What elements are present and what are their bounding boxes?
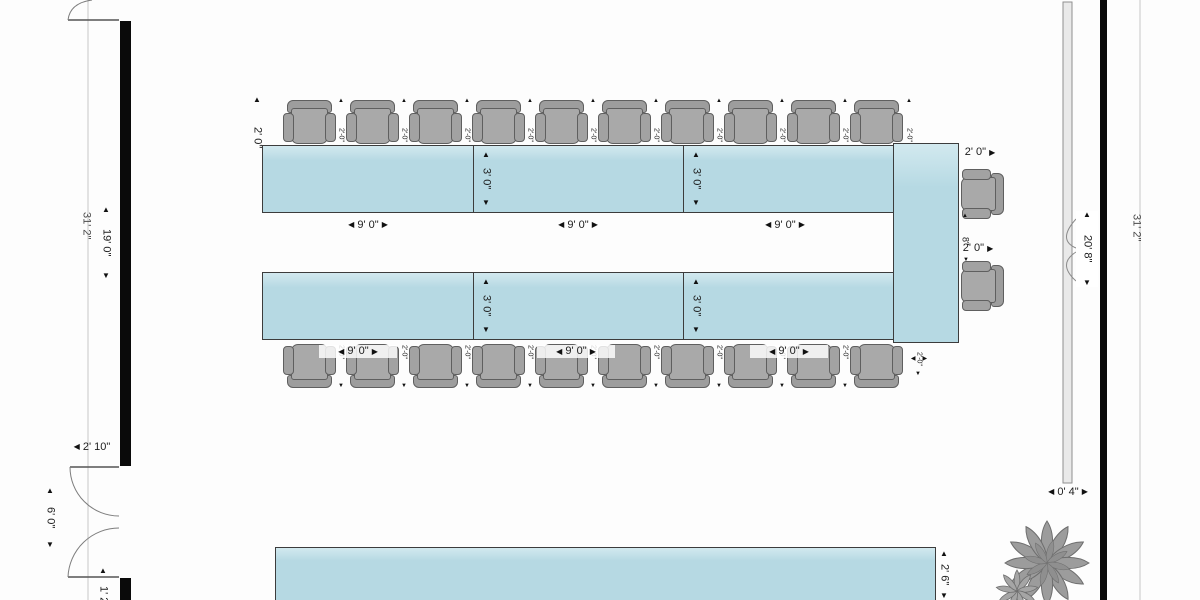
arrow-up-icon: ▲ (253, 96, 261, 104)
arrow-down-icon: ▼ (482, 326, 490, 334)
dim-board-length: ▲ 20' 8" ▼ (1076, 211, 1098, 287)
chair[interactable] (409, 343, 462, 388)
chair[interactable] (661, 100, 714, 145)
dim-room-side-left: 31' 2" (76, 212, 96, 272)
table-section-bottom-3[interactable] (683, 272, 894, 340)
dim-text: 2'-0" (916, 352, 923, 366)
dim-text: 9' 0" (567, 220, 588, 231)
dim-text: 31' 2" (1131, 214, 1142, 241)
dim-chair-gap: 2'-0"▼ (399, 345, 409, 389)
chair[interactable] (598, 100, 651, 145)
arrow-left-icon: ◀ (348, 221, 354, 229)
dim-section-length: ◀ 9' 0" ▶ (319, 345, 397, 358)
dim-text: 9' 0" (565, 346, 586, 357)
plant[interactable] (996, 521, 1089, 600)
dim-text: 2' 0" (252, 127, 263, 148)
table-section-bottom-1[interactable] (262, 272, 474, 340)
dim-text: 6' 0" (45, 507, 56, 528)
arrow-up-icon: ▲ (590, 98, 596, 104)
arrow-left-icon: ◀ (769, 348, 775, 356)
arrow-right-icon: ▶ (382, 221, 388, 229)
dim-text: 9' 0" (357, 220, 378, 231)
back-table[interactable] (275, 547, 936, 600)
dim-chair-gap: 2'-0"▼ (651, 345, 661, 389)
left-wall-stub (120, 578, 131, 600)
arrow-down-icon: ▼ (940, 592, 948, 600)
arrow-down-icon: ▼ (482, 199, 490, 207)
dim-section-depth: ▲3' 0"▼ (688, 278, 704, 334)
dim-board-depth: ◀ 0' 4" ▶ (1034, 485, 1102, 499)
dim-text: 2' 10" (83, 442, 110, 453)
dim-room-side-right: 31' 2" (1126, 214, 1146, 274)
dim-section-depth: ▲3' 0"▼ (478, 151, 494, 207)
table-section-top-1[interactable] (262, 145, 474, 213)
dim-text: 2'-0" (527, 128, 534, 142)
dim-text: 19' 0" (101, 229, 112, 256)
arrow-right-icon: ▶ (989, 149, 995, 157)
arrow-left-icon: ◀ (765, 221, 771, 229)
dim-section-length: ◀ 9' 0" ▶ (330, 218, 406, 232)
arrow-right-icon: ▶ (803, 348, 809, 356)
right-wall (1100, 0, 1107, 600)
arrow-down-icon: ▼ (102, 272, 110, 280)
arrow-down-icon: ▼ (338, 383, 344, 389)
dim-chair-gap: ▲2'-0" (525, 98, 535, 142)
table-section-top-3[interactable] (683, 145, 894, 213)
chair[interactable] (850, 100, 903, 145)
dim-text: 2'-0" (779, 128, 786, 142)
arrow-right-icon: ▶ (987, 245, 993, 253)
dim-chair-gap: ▲2'-0" (399, 98, 409, 142)
arrow-down-icon: ▼ (590, 383, 596, 389)
whiteboard[interactable] (1063, 2, 1072, 483)
dim-section-length: ◀ 9' 0" ▶ (540, 218, 616, 232)
table-section-top-2[interactable] (473, 145, 684, 213)
dim-text: 2'-0" (590, 128, 597, 142)
dim-text: 9' 0" (347, 346, 368, 357)
dim-text: 1' 2" (98, 586, 109, 600)
dim-wall-segment: ▲ 19' 0" ▼ (96, 206, 116, 280)
arrow-left-icon: ◀ (338, 348, 344, 356)
dim-text: 20' 8" (1082, 235, 1093, 262)
dim-section-depth: ▲3' 0"▼ (478, 278, 494, 334)
dim-door-opening: ▲ 6' 0" ▼ (42, 487, 58, 549)
dim-text: 2'-0" (338, 128, 345, 142)
arrow-up-icon: ▲ (464, 98, 470, 104)
chair[interactable] (724, 100, 777, 145)
table-section-head[interactable] (893, 143, 959, 343)
dim-section-depth: ▲3' 0"▼ (688, 151, 704, 207)
arrow-up-icon: ▲ (482, 151, 490, 159)
dim-chair-gap: ▲2'-0" (651, 98, 661, 142)
chair[interactable] (960, 169, 1004, 219)
dim-chair-gap: ▲2'-0" (714, 98, 724, 142)
dim-text: 2'-0" (716, 128, 723, 142)
arrow-left-icon: ◀ (556, 348, 562, 356)
dim-text: 2' 0" (965, 147, 986, 158)
arrow-right-icon: ▶ (799, 221, 805, 229)
arrow-down-icon: ▼ (913, 370, 923, 378)
dim-text: 2'-0" (401, 128, 408, 142)
arrow-up-icon: ▲ (962, 213, 968, 219)
arrow-up-icon: ▲ (338, 98, 344, 104)
double-door (68, 467, 119, 577)
dim-text: 2'-0" (464, 345, 471, 359)
dim-chair-gap: ▲2'-0" (588, 98, 598, 142)
dim-chair-width: 2' 0" ▶ (956, 146, 1004, 159)
chair[interactable] (472, 100, 525, 145)
chair[interactable] (787, 100, 840, 145)
dim-wall-stub: ▲ 1' 2" (95, 567, 111, 600)
dim-text: 2' 6" (939, 564, 950, 585)
arrow-up-icon: ▲ (527, 98, 533, 104)
arrow-left-icon: ◀ (1048, 488, 1054, 496)
arrow-up-icon: ▲ (906, 98, 912, 104)
arrow-up-icon: ▲ (102, 206, 110, 214)
arrow-up-icon: ▲ (46, 487, 54, 495)
dim-chair-gap: ▲2'-0" (462, 98, 472, 142)
arrow-down-icon: ▼ (842, 383, 848, 389)
dim-text: 31' 2" (81, 212, 92, 239)
arrow-down-icon: ▼ (653, 383, 659, 389)
chair[interactable] (409, 100, 462, 145)
dim-chair-width: 2' 0" ▶ (954, 242, 1002, 255)
dim-chair-gap: ◀ 2'-0" ▶ (898, 346, 940, 372)
dim-text: 2'-0" (716, 345, 723, 359)
arrow-left-icon: ◀ (558, 221, 564, 229)
floor-plan-canvas: 31' 2" ▲ 19' 0" ▼ ◀ 2' 10" ▲ 6' 0" ▼ ▲ 1… (0, 0, 1200, 600)
dim-text: 2' 0" (963, 243, 984, 254)
arrow-down-icon: ▼ (961, 256, 971, 264)
dim-chair-gap: 2'-0"▼ (462, 345, 472, 389)
dim-chair-width: ▲ 2' 0" (249, 96, 265, 148)
chair[interactable] (850, 343, 903, 388)
dim-chair-gap: 2'-0"▼ (714, 345, 724, 389)
dim-head-gap: ▲8" (959, 213, 971, 245)
dim-chair-gap: ▲2'-0" (336, 98, 346, 142)
dim-back-table-depth: ▲ 2' 6" ▼ (936, 550, 952, 600)
dim-section-length: ◀ 9' 0" ▶ (750, 345, 828, 358)
arrow-down-icon: ▼ (1083, 279, 1091, 287)
dim-text: 3' 0" (691, 168, 702, 189)
arrow-up-icon: ▲ (653, 98, 659, 104)
arrow-down-icon: ▼ (716, 383, 722, 389)
dim-text: 2'-0" (464, 128, 471, 142)
dim-chair-gap: 2'-0"▼ (525, 345, 535, 389)
dim-text: 2'-0" (401, 345, 408, 359)
dim-text: 2'-0" (906, 128, 913, 142)
arrow-down-icon: ▼ (692, 199, 700, 207)
arrow-right-icon: ▶ (592, 221, 598, 229)
arrow-right-icon: ▶ (923, 356, 928, 362)
arrow-up-icon: ▲ (401, 98, 407, 104)
arrow-up-icon: ▲ (692, 278, 700, 286)
dim-text: 3' 0" (481, 295, 492, 316)
dim-section-length: ◀ 9' 0" ▶ (537, 345, 615, 358)
dim-text: 2'-0" (653, 345, 660, 359)
arrow-right-icon: ▶ (590, 348, 596, 356)
arrow-up-icon: ▲ (716, 98, 722, 104)
arrow-down-icon: ▼ (527, 383, 533, 389)
dim-door-width: ◀ 2' 10" (62, 440, 122, 454)
arrow-up-icon: ▲ (842, 98, 848, 104)
dim-text: 2'-0" (527, 345, 534, 359)
dim-chair-gap: ▲2'-0" (904, 98, 914, 142)
arrow-up-icon: ▲ (482, 278, 490, 286)
chair[interactable] (472, 343, 525, 388)
arrow-right-icon: ▶ (372, 348, 378, 356)
arrow-up-icon: ▲ (779, 98, 785, 104)
table-section-bottom-2[interactable] (473, 272, 684, 340)
dim-chair-gap: ▲2'-0" (840, 98, 850, 142)
dim-section-length: ◀ 9' 0" ▶ (747, 218, 823, 232)
dim-text: 3' 0" (691, 295, 702, 316)
chair[interactable] (960, 261, 1004, 311)
arrow-up-icon: ▲ (940, 550, 948, 558)
arrow-up-icon: ▲ (1083, 211, 1091, 219)
arrow-down-icon: ▼ (46, 541, 54, 549)
top-left-door (68, 0, 119, 20)
dim-text: 3' 0" (481, 168, 492, 189)
dim-chair-gap: 2'-0"▼ (840, 345, 850, 389)
arrow-down-icon: ▼ (464, 383, 470, 389)
arrow-down-icon: ▼ (779, 383, 785, 389)
chair[interactable] (283, 100, 336, 145)
chair[interactable] (535, 100, 588, 145)
chair[interactable] (661, 343, 714, 388)
arrow-right-icon: ▶ (1082, 488, 1088, 496)
arrow-left-icon: ◀ (74, 443, 80, 451)
dim-text: 2'-0" (842, 128, 849, 142)
dim-text: 9' 0" (774, 220, 795, 231)
left-wall (120, 21, 131, 466)
dim-text: 2'-0" (842, 345, 849, 359)
chair[interactable] (346, 100, 399, 145)
dim-text: 0' 4" (1057, 487, 1078, 498)
dim-text: 2'-0" (653, 128, 660, 142)
arrow-up-icon: ▲ (692, 151, 700, 159)
arrow-down-icon: ▼ (401, 383, 407, 389)
dim-text: 9' 0" (778, 346, 799, 357)
dim-chair-gap: ▲2'-0" (777, 98, 787, 142)
arrow-down-icon: ▼ (692, 326, 700, 334)
arrow-up-icon: ▲ (99, 567, 107, 575)
